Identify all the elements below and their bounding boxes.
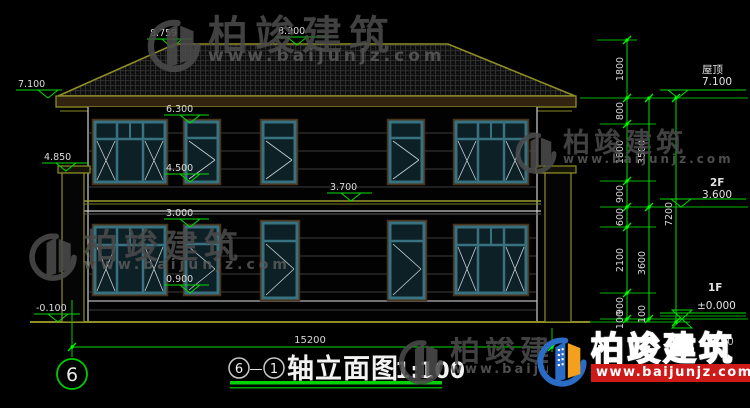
title-axis-to: 1 bbox=[270, 362, 278, 377]
window-1f-tall-left bbox=[261, 221, 299, 300]
svg-text:0.900: 0.900 bbox=[166, 274, 193, 285]
svg-text:屋顶: 屋顶 bbox=[702, 64, 723, 76]
axis-bubble-6: 6 bbox=[57, 359, 87, 389]
pillar-right bbox=[536, 166, 576, 322]
window-2f-mid-left bbox=[261, 120, 297, 184]
svg-text:3600: 3600 bbox=[637, 251, 648, 275]
window-2f-left bbox=[93, 120, 167, 184]
level-8900: 8.900 bbox=[275, 26, 330, 45]
brand-url-bar: www.baijunjz.com bbox=[591, 364, 750, 382]
svg-text:100: 100 bbox=[637, 305, 648, 323]
title-block: 6 — 1 轴立面图 1:100 bbox=[229, 353, 465, 389]
svg-text:4.850: 4.850 bbox=[44, 152, 71, 163]
brand-logo-icon bbox=[537, 332, 587, 396]
title-axis-from: 6 bbox=[235, 362, 243, 377]
roof bbox=[58, 44, 575, 96]
dim-col2: 3500 3600 100 bbox=[637, 140, 648, 323]
svg-text:1F: 1F bbox=[708, 282, 722, 294]
window-2f-right bbox=[454, 120, 528, 184]
svg-text:900: 900 bbox=[615, 185, 626, 203]
title-dash: — bbox=[250, 362, 263, 377]
window-1f-right bbox=[454, 225, 528, 295]
window-1f-left bbox=[93, 225, 167, 295]
svg-text:4.500: 4.500 bbox=[166, 163, 193, 174]
pillar-left bbox=[58, 166, 90, 322]
window-1f-tall-right bbox=[388, 221, 426, 300]
svg-text:2100: 2100 bbox=[615, 248, 626, 272]
window-2f-mid-right bbox=[388, 120, 424, 184]
svg-text:3.700: 3.700 bbox=[330, 182, 357, 193]
svg-text:3500: 3500 bbox=[637, 140, 648, 164]
brand-name-text: 柏竣建筑 bbox=[591, 332, 750, 367]
right-dimensions: 1800 800 1800 900 600 2100 900 100 3500 … bbox=[580, 36, 748, 348]
svg-text:6: 6 bbox=[66, 364, 78, 386]
svg-text:800: 800 bbox=[615, 102, 626, 120]
level-7100-left: 7.100 bbox=[16, 79, 62, 98]
svg-text:2F: 2F bbox=[710, 177, 724, 189]
svg-text:-0.100: -0.100 bbox=[36, 303, 67, 314]
svg-text:8.759: 8.759 bbox=[150, 28, 177, 39]
title-name: 轴立面图 bbox=[287, 353, 399, 385]
svg-text:3.000: 3.000 bbox=[166, 208, 193, 219]
svg-text:6.300: 6.300 bbox=[166, 104, 193, 115]
brand-logo: 柏竣建筑 www.baijunjz.com bbox=[537, 332, 750, 396]
total-width-dim: 15200 bbox=[294, 335, 326, 346]
svg-text:7200: 7200 bbox=[664, 202, 675, 226]
svg-text:1800: 1800 bbox=[615, 57, 626, 81]
svg-text:1800: 1800 bbox=[615, 140, 626, 164]
cad-elevation-screenshot: 8.759 8.900 7.100 6.300 4.850 4.500 bbox=[0, 0, 750, 408]
svg-text:100: 100 bbox=[615, 311, 626, 329]
title-scale: 1:100 bbox=[395, 359, 465, 384]
svg-text:7.100: 7.100 bbox=[702, 76, 732, 88]
dim-col3: 7200 bbox=[664, 202, 675, 226]
svg-text:600: 600 bbox=[615, 208, 626, 226]
svg-text:±0.000: ±0.000 bbox=[697, 300, 736, 312]
svg-text:7.100: 7.100 bbox=[18, 79, 45, 90]
svg-text:8.900: 8.900 bbox=[278, 26, 305, 37]
